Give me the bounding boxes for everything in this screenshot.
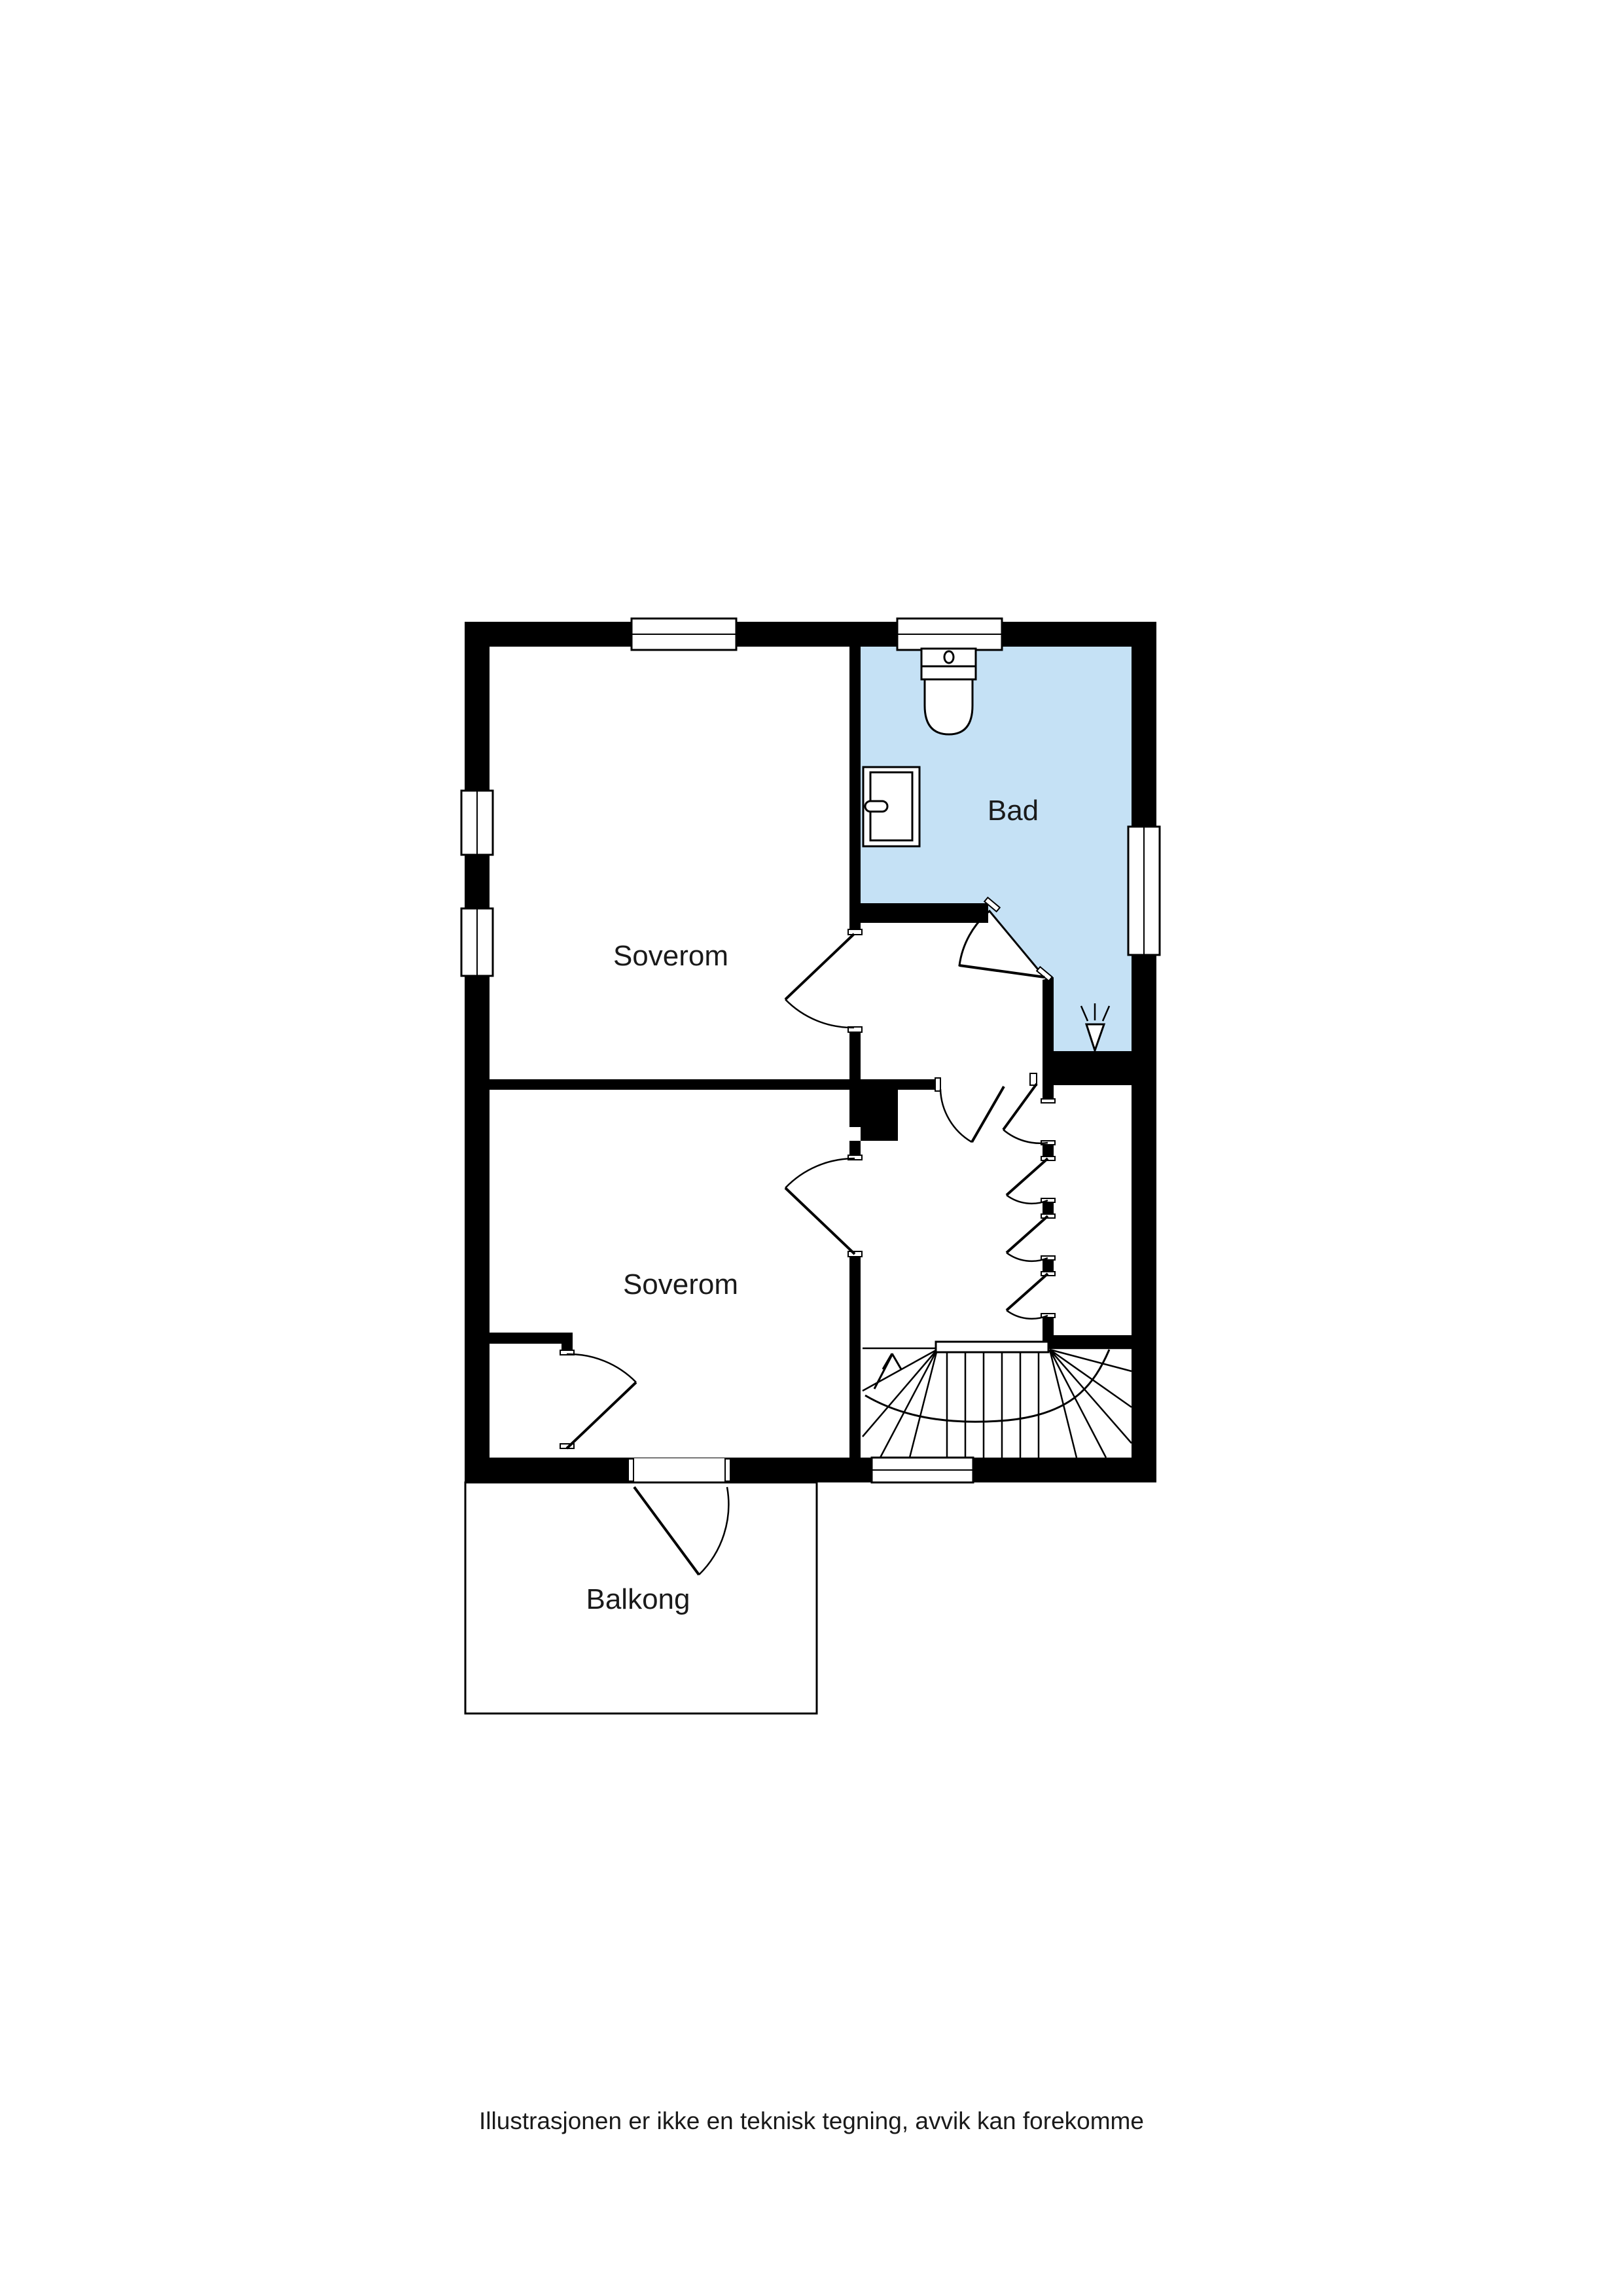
window-stairs-bottom (872, 1458, 973, 1482)
label-bad: Bad (988, 795, 1039, 827)
wall-bed2-hall-lower (849, 1256, 861, 1458)
wall-bed1-bath (849, 647, 861, 929)
label-balkong: Balkong (586, 1583, 690, 1615)
door-bedroom-1 (785, 934, 854, 1028)
wall-corner-block (849, 1079, 898, 1127)
wall-bed1-hall-stub (849, 1032, 861, 1079)
door-jambs (560, 897, 1055, 1482)
door-closet-3 (1007, 1216, 1048, 1261)
wall-bath-chamfer-post (1043, 977, 1054, 1051)
door-hall (940, 1086, 1004, 1142)
jamb-bed1-top (848, 929, 862, 935)
label-soverom-2: Soverom (623, 1268, 738, 1300)
bathroom-floor (861, 647, 1132, 1073)
floor-plan-drawing: Soverom Bad Soverom Balkong Illustrasjon… (0, 0, 1623, 2296)
sink-icon (863, 767, 919, 846)
staircase (863, 1342, 1132, 1458)
door-closet-4 (1007, 1274, 1048, 1319)
door-closet-1 (1003, 1084, 1048, 1143)
closet-bottom-wall (1054, 1335, 1133, 1348)
balcony-door-gap (630, 1458, 729, 1482)
door-closet-2 (1007, 1158, 1048, 1204)
window-bed1-left (461, 791, 493, 855)
wall-exterior-right (1132, 622, 1156, 1482)
stair-nosing (936, 1342, 1048, 1352)
wall-exterior-left (465, 622, 490, 1482)
wall-corner-block-step (861, 1127, 898, 1141)
window-bed1-top (632, 619, 736, 650)
door-bed2-closet (567, 1354, 636, 1448)
window-bed2-left (461, 908, 493, 976)
door-balcony (634, 1487, 728, 1575)
jamb-balcony-right (725, 1459, 730, 1481)
wall-exterior-top (465, 622, 1156, 647)
toilet-icon (921, 649, 976, 734)
jamb-closet-1a (1041, 1099, 1055, 1103)
wall-bath-strip-bottom (1043, 1051, 1133, 1085)
jamb-balcony-left (628, 1459, 633, 1481)
bed2-closet-top-wall (490, 1333, 573, 1344)
window-bath-right (1128, 827, 1160, 955)
floor-plan-page: Soverom Bad Soverom Balkong Illustrasjon… (0, 0, 1623, 2296)
wall-bed2-hall-upper (849, 1141, 861, 1157)
label-soverom-1: Soverom (613, 940, 728, 972)
bathroom-floor-area (861, 647, 1132, 1073)
wall-exterior-bottom (465, 1458, 1156, 1482)
disclaimer-text: Illustrasjonen er ikke en teknisk tegnin… (479, 2108, 1144, 2134)
window-bath-top (897, 619, 1002, 650)
door-bedroom-2 (785, 1158, 855, 1254)
wall-bath-bottom (849, 903, 988, 923)
jamb-bed2-bottom (848, 1251, 862, 1257)
jamb-hall-door (935, 1078, 940, 1091)
